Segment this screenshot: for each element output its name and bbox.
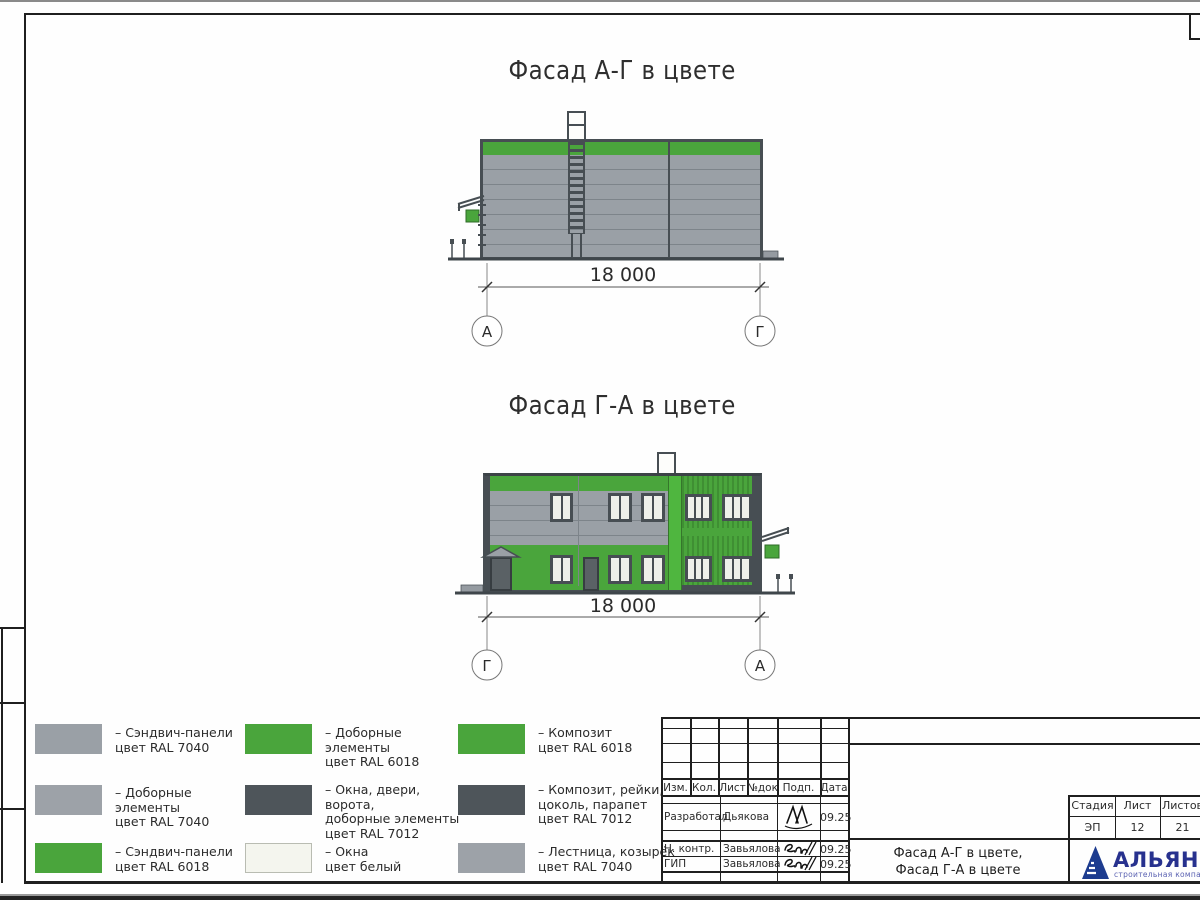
legend-label: – Доборные элементыцвет RAL 6018 [325,726,463,770]
company-logo-icon [1082,846,1109,879]
stage-label: Стадия [1070,798,1115,813]
company-name: АЛЬЯНС [1113,848,1200,872]
legend-swatch [35,843,102,873]
legend-label: – Окнацвет белый [325,845,463,874]
legend-label: – Сэндвич-панелицвет RAL 7040 [115,726,243,755]
sheet-label: Лист [1115,798,1160,813]
legend-label: – Окна, двери, ворота,доборные элементыц… [325,783,463,841]
row-date: 09.25 [820,810,848,825]
row-role: Н. контр. [664,842,714,857]
legend-swatch [245,724,312,754]
legend-label: – Композит, рейки,цоколь, парапетцвет RA… [538,783,668,827]
row-date: 09.25 [820,842,848,857]
legend-swatch [35,724,102,754]
titleblock-border [661,717,1200,719]
facade2-axis-left: Г [482,657,491,675]
frame-corner-cell-h [1189,38,1200,40]
facade2-annotations: 18 000 Г А [440,440,820,700]
facade1-title: Фасад А-Г в цвете [422,56,822,86]
door-canopy-icon [483,547,519,557]
legend-swatch [458,785,525,815]
top-edge-strip [0,0,1200,2]
legend-swatch [245,785,312,815]
document-title: Фасад А-Г в цвете, Фасад Г-А в цвете [850,845,1066,879]
posts [452,243,464,259]
stage-value: ЭП [1070,820,1115,835]
facade1-axis-right: Г [755,323,764,341]
sheets-label: Листов [1160,798,1200,813]
margin-cell-line [0,702,24,704]
facade1-axis-left: А [482,323,493,341]
legend-swatch [35,785,102,815]
row-name: Завьялова [723,842,781,857]
legend-swatch [458,843,525,873]
canopy-icon [762,527,789,541]
frame-bottom [24,881,1200,884]
margin-cell-line [0,808,24,810]
frame-corner-cell-v [1189,13,1191,39]
col-kol: Кол. [690,781,718,796]
canopy-icon [458,196,484,211]
facade1-annotations: 18 000 А Г [430,90,810,370]
legend-swatch [245,843,312,873]
green-element [466,210,479,222]
row-role: Разработал [664,810,728,825]
green-element [765,545,779,558]
bottom-edge-dark [0,896,1200,900]
posts [778,578,791,593]
frame-top [24,13,1200,15]
legend-label: – Лестница, козырёкцвет RAL 7040 [538,845,678,874]
facade1-dimension-text: 18 000 [590,264,656,286]
col-data: Дата [820,781,848,796]
facade2-title: Фасад Г-А в цвете [422,391,822,421]
sheet-value: 12 [1115,820,1160,835]
facade2-dimension-text: 18 000 [590,595,656,617]
titleblock-border [661,717,663,883]
signature [781,801,817,831]
col-ndok: №док [747,781,777,796]
row-date: 09.25 [820,857,848,872]
row-name: Дьякова [723,810,769,825]
facade2-axis-right: А [755,657,766,675]
margin-cell-edge [1,627,3,883]
row-role: ГИП [664,857,686,872]
col-list: Лист [718,781,747,796]
legend-label: – Доборные элементыцвет RAL 7040 [115,786,243,830]
row-name: Завьялова [723,857,781,872]
legend-label: – Композитцвет RAL 6018 [538,726,668,755]
col-izm: Изм. [661,781,690,796]
margin-cell-line [0,627,24,629]
drawing-sheet: Фасад А-Г в цвете 18 000 А Г Фасад Г-А в [0,0,1200,900]
col-podp: Подп. [777,781,820,796]
legend-label: – Сэндвич-панелицвет RAL 6018 [115,845,243,874]
ground-step [461,585,483,592]
frame-left [24,13,26,883]
signature [781,855,817,872]
sheets-value: 21 [1160,820,1200,835]
company-subtitle: строительная компания [1114,870,1200,879]
legend-swatch [458,724,525,754]
